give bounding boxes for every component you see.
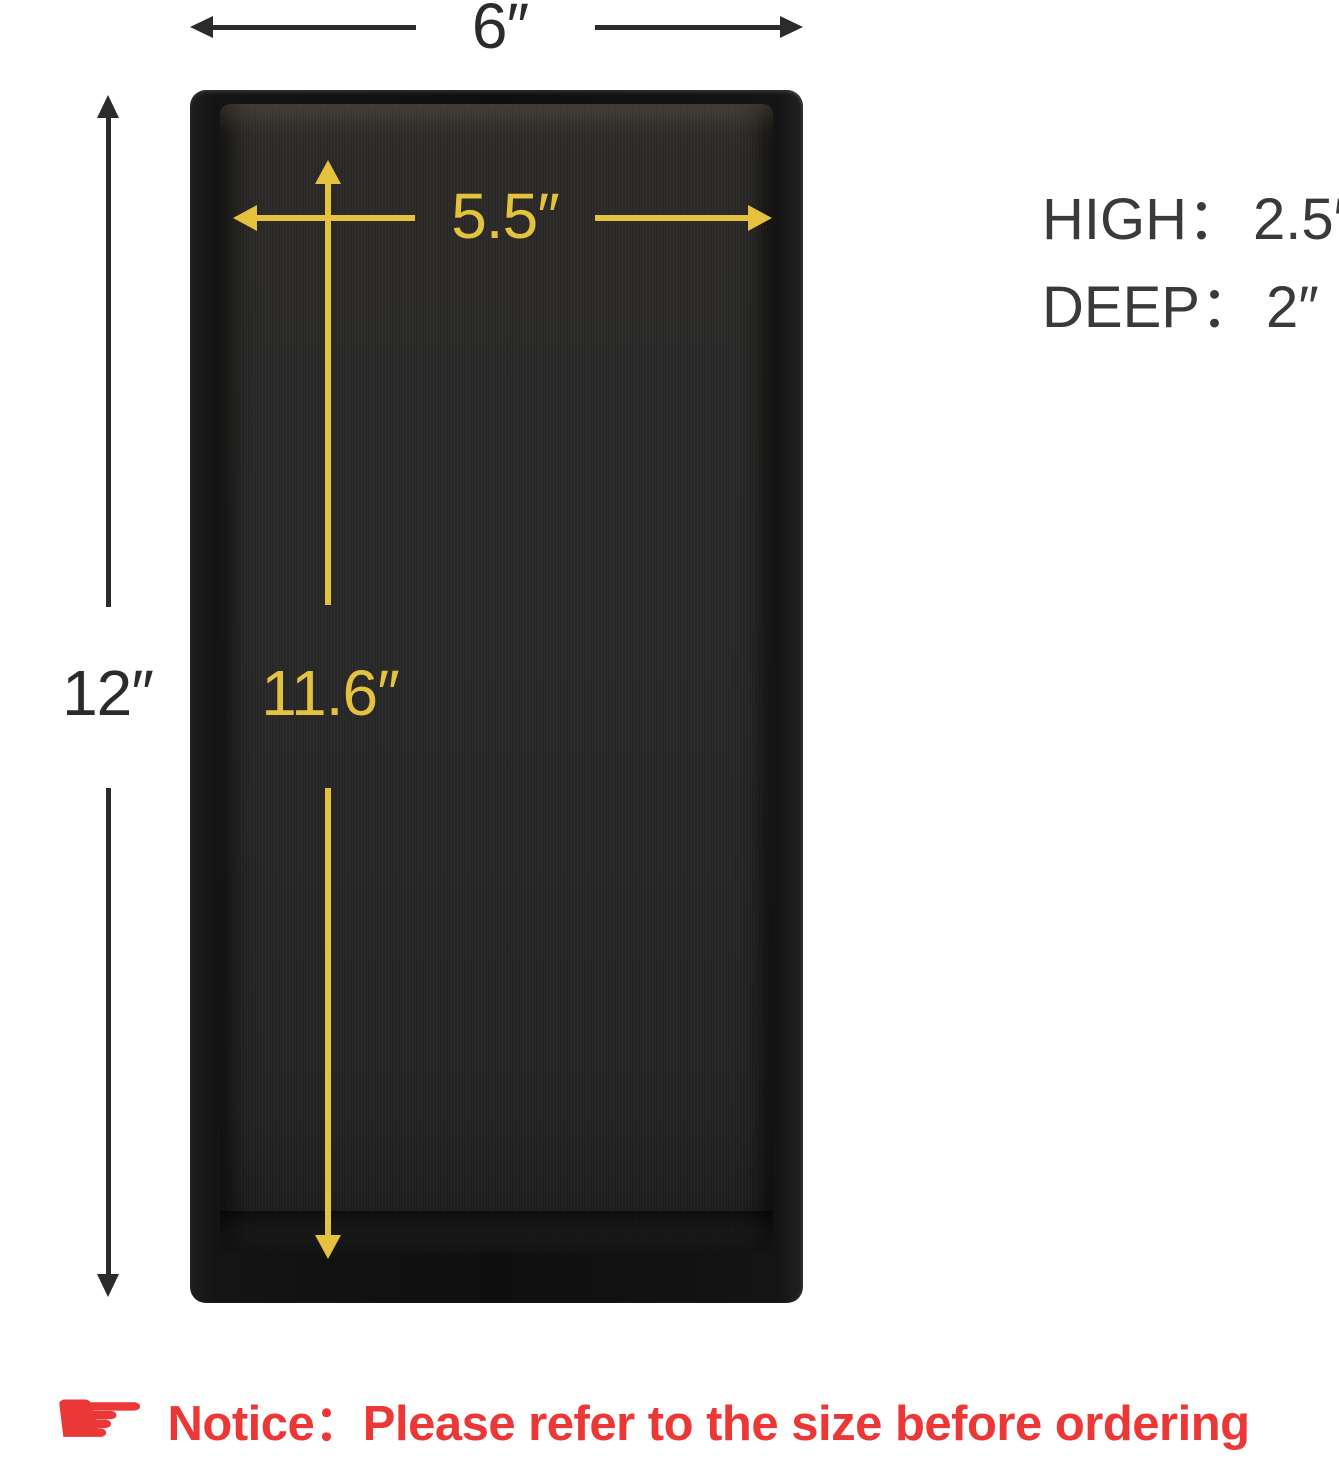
arrow-down-icon (97, 1274, 119, 1297)
outer-height-label: 12″ (25, 658, 190, 728)
dimension-line (595, 215, 749, 221)
pointing-hand-icon: ☛ (50, 1378, 149, 1460)
notice-banner: ☛ Notice：Please refer to the size before… (50, 1378, 1250, 1460)
dimension-line (256, 215, 415, 221)
outer-width-label: 6″ (410, 0, 590, 61)
arrow-up-icon (315, 160, 341, 184)
inner-height-label: 11.6″ (225, 658, 435, 728)
spec-deep: DEEP： 2″ (1042, 264, 1339, 352)
spec-list: HIGH： 2.5″ DEEP： 2″ (1042, 176, 1339, 352)
arrow-right-icon (748, 205, 772, 231)
spec-high-label: HIGH： (1042, 176, 1245, 264)
product-size-diagram: 6″ 12″ 5.5″ 11.6″ HIGH： 2.5″ DEEP： 2″ (0, 0, 1339, 1467)
arrow-down-icon (315, 1235, 341, 1259)
dimension-line (211, 25, 416, 30)
dimension-line (106, 117, 111, 607)
dimension-line (325, 183, 331, 605)
arrow-left-icon (233, 205, 257, 231)
dimension-line (106, 788, 111, 1275)
arrow-up-icon (97, 95, 119, 118)
arrow-left-icon (190, 16, 213, 38)
arrow-right-icon (780, 16, 803, 38)
dimension-line (325, 788, 331, 1236)
spec-deep-value: 2″ (1266, 264, 1319, 352)
spec-high-value: 2.5″ (1253, 176, 1339, 264)
spec-deep-label: DEEP： (1042, 264, 1258, 352)
inner-width-label: 5.5″ (420, 181, 590, 251)
dimension-line (595, 25, 782, 30)
spec-high: HIGH： 2.5″ (1042, 176, 1339, 264)
tray-inner-front-wall (220, 1211, 773, 1253)
notice-text: Notice：Please refer to the size before o… (168, 1384, 1250, 1455)
